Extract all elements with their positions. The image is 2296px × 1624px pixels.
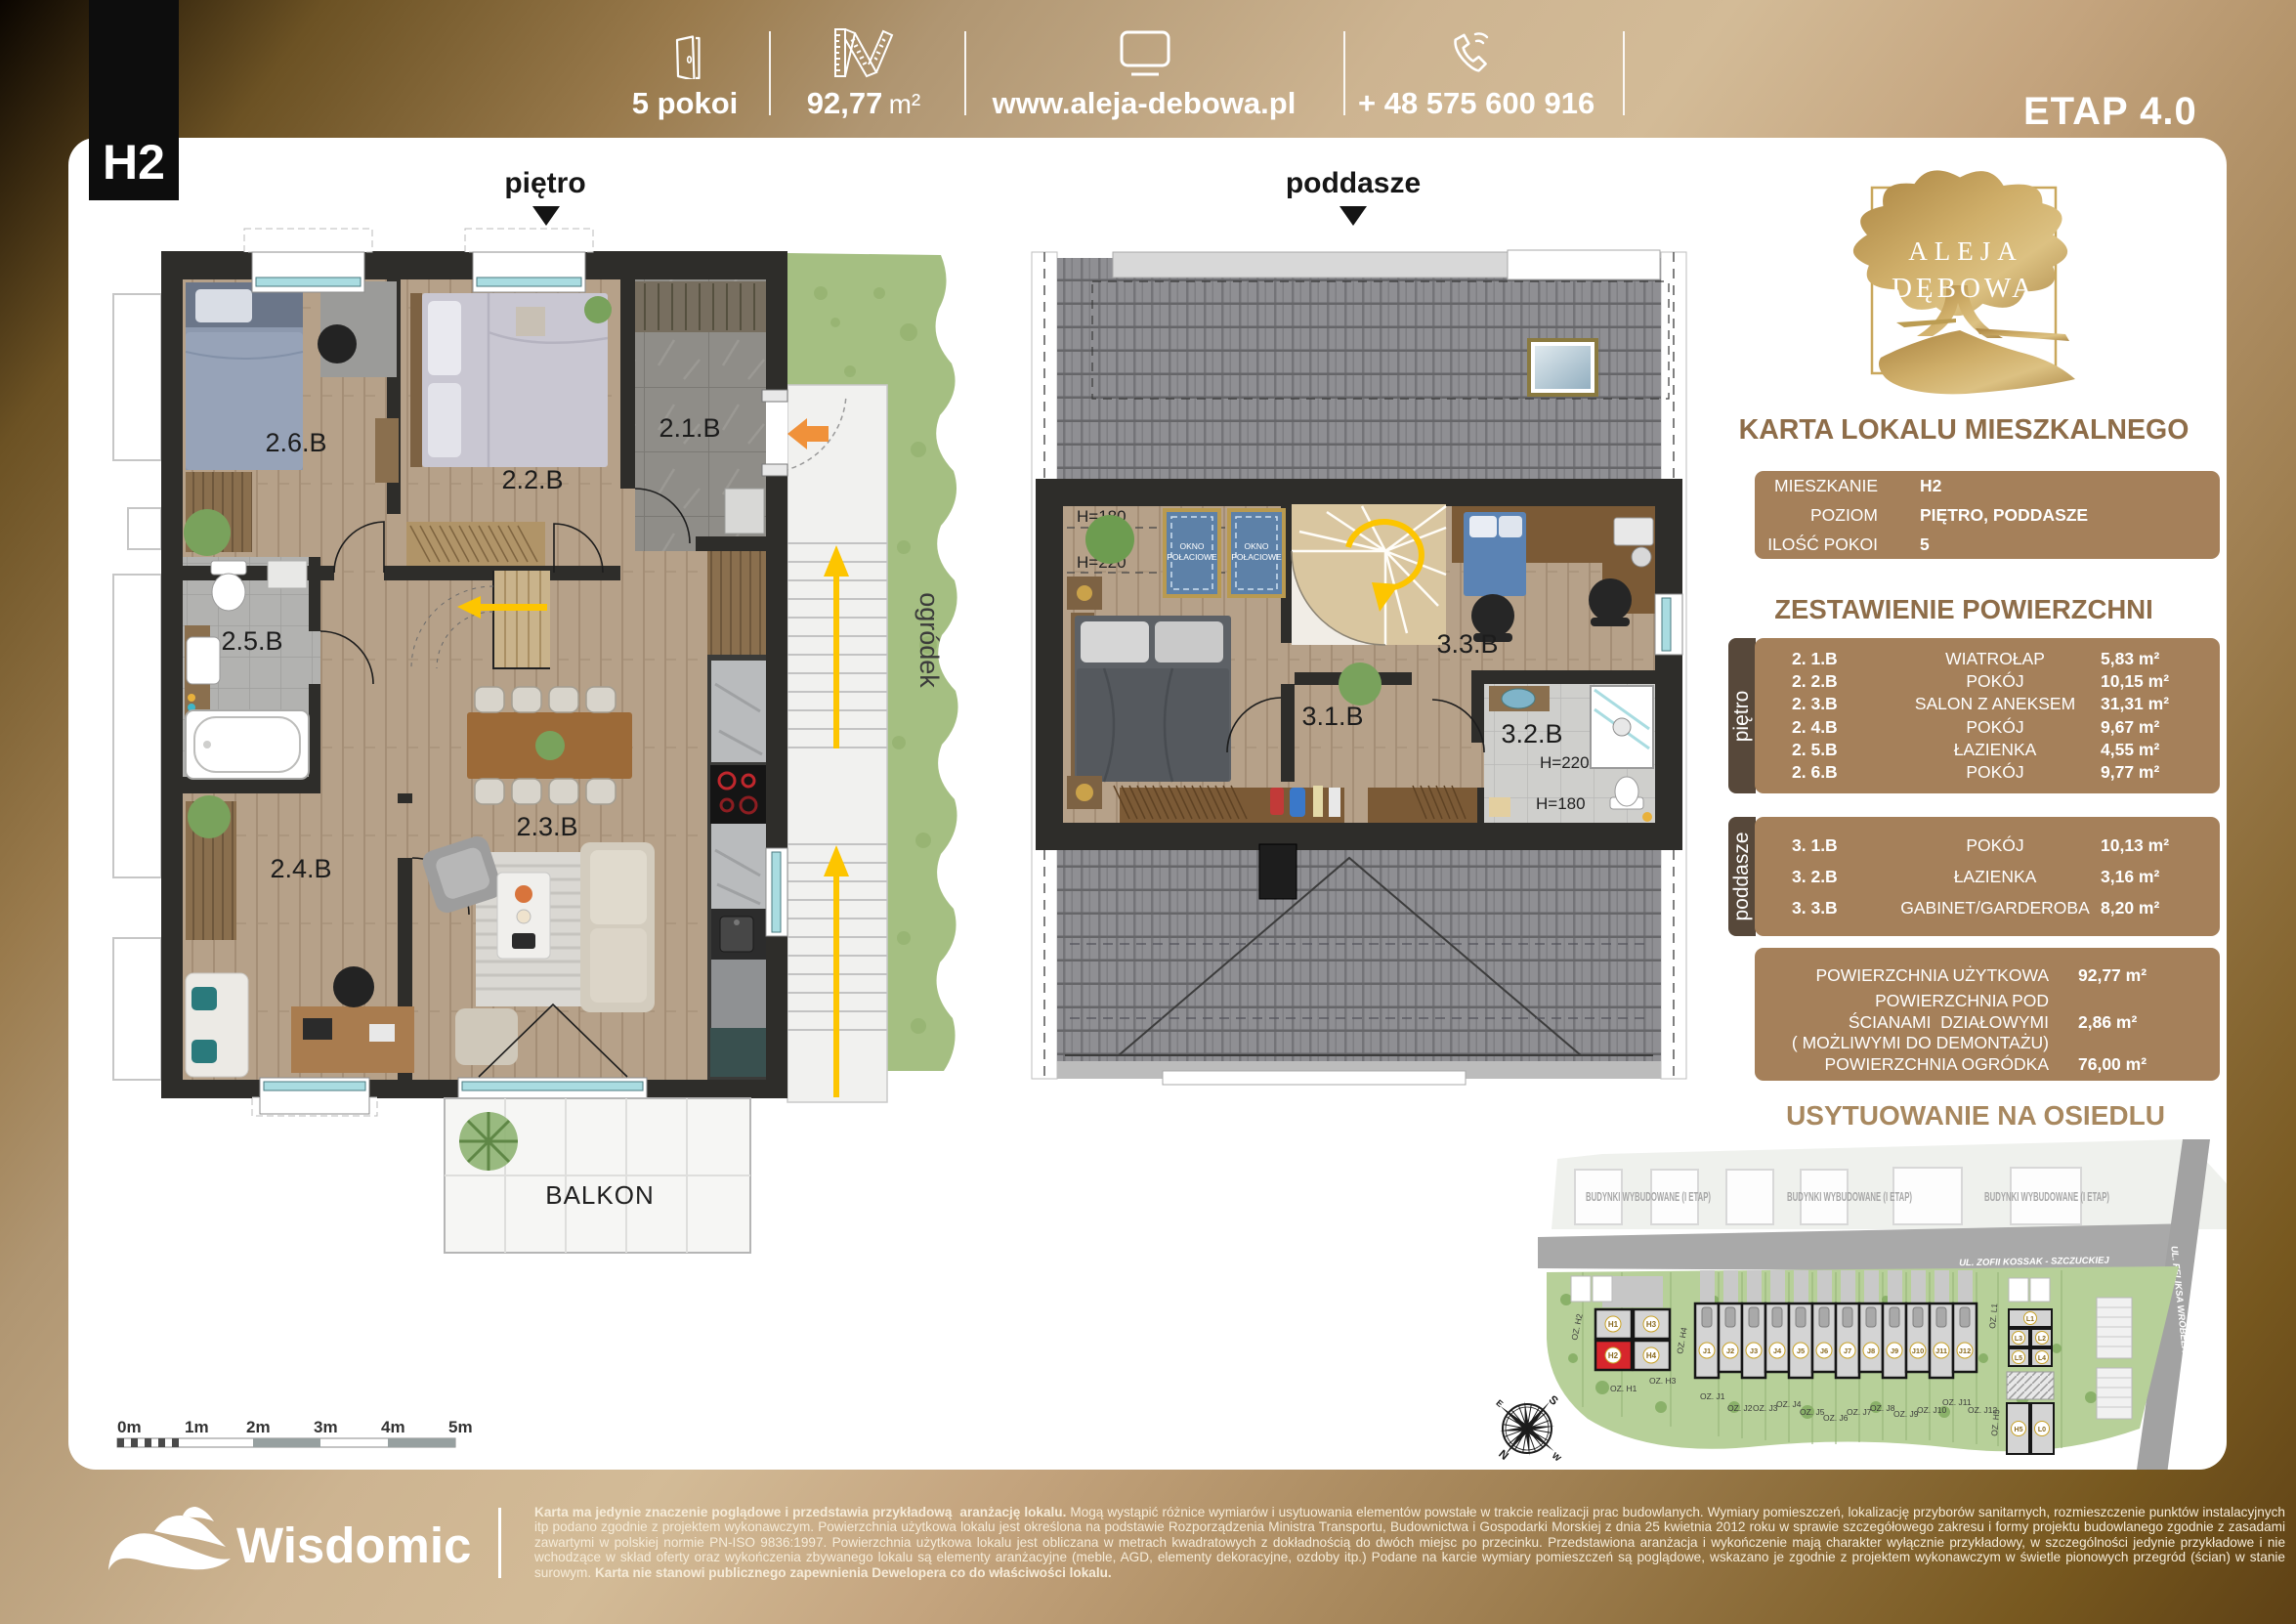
svg-text:OZ. J5: OZ. J5 — [1800, 1407, 1825, 1417]
svg-text:OKNO: OKNO — [1179, 541, 1204, 551]
svg-text:BALKON: BALKON — [545, 1180, 655, 1210]
svg-text:H2: H2 — [1608, 1351, 1619, 1360]
svg-text:J10: J10 — [1912, 1346, 1925, 1355]
svg-text:E: E — [1494, 1398, 1505, 1410]
svg-text:OZ. J6: OZ. J6 — [1823, 1413, 1849, 1423]
svg-text:OZ. J8: OZ. J8 — [1870, 1403, 1895, 1413]
svg-text:OZ. J7: OZ. J7 — [1847, 1407, 1872, 1417]
svg-text:BUDYNKI WYBUDOWANE (I ETAP): BUDYNKI WYBUDOWANE (I ETAP) — [1787, 1189, 1912, 1204]
svg-text:H5: H5 — [2015, 1427, 2023, 1433]
svg-text:OZ. H1: OZ. H1 — [1610, 1384, 1637, 1393]
svg-text:2.1.B: 2.1.B — [659, 413, 720, 443]
svg-text:BUDYNKI WYBUDOWANE (I ETAP): BUDYNKI WYBUDOWANE (I ETAP) — [1586, 1189, 1711, 1204]
svg-text:POŁACIOWE: POŁACIOWE — [1231, 552, 1282, 562]
svg-text:H4: H4 — [1646, 1351, 1657, 1360]
svg-text:Wisdomic: Wisdomic — [236, 1517, 471, 1573]
svg-text:H=180: H=180 — [1536, 794, 1586, 813]
svg-text:OZ. H3: OZ. H3 — [1649, 1376, 1677, 1386]
svg-text:OZ. J2: OZ. J2 — [1727, 1403, 1753, 1413]
svg-text:3m: 3m — [314, 1418, 338, 1436]
svg-text:J11: J11 — [1935, 1346, 1947, 1355]
svg-text:H1: H1 — [1608, 1320, 1619, 1329]
svg-text:S: S — [1547, 1392, 1561, 1408]
svg-text:J6: J6 — [1820, 1346, 1828, 1355]
svg-text:2.3.B: 2.3.B — [516, 812, 577, 841]
svg-text:BUDYNKI WYBUDOWANE (I ETAP): BUDYNKI WYBUDOWANE (I ETAP) — [1984, 1189, 2109, 1204]
svg-text:OZ. J3: OZ. J3 — [1753, 1403, 1778, 1413]
svg-text:L5: L5 — [2015, 1355, 2022, 1362]
svg-text:DĘBOWA: DĘBOWA — [1892, 273, 2036, 304]
svg-text:2m: 2m — [246, 1418, 271, 1436]
svg-text:2.4.B: 2.4.B — [270, 854, 331, 883]
svg-text:L2: L2 — [2038, 1336, 2046, 1343]
svg-text:2.2.B: 2.2.B — [501, 465, 563, 494]
svg-text:N: N — [1496, 1447, 1511, 1463]
svg-text:OZ. J9: OZ. J9 — [1893, 1409, 1919, 1419]
svg-text:ogródek: ogródek — [914, 592, 944, 688]
svg-text:L1: L1 — [2026, 1316, 2034, 1323]
svg-text:OZ. J1: OZ. J1 — [1700, 1391, 1725, 1401]
svg-text:POŁACIOWE: POŁACIOWE — [1167, 552, 1217, 562]
svg-text:ALEJA: ALEJA — [1908, 236, 2023, 266]
svg-text:0m: 0m — [117, 1418, 142, 1436]
svg-text:3.1.B: 3.1.B — [1301, 702, 1363, 731]
svg-text:J3: J3 — [1750, 1346, 1758, 1355]
svg-text:J1: J1 — [1703, 1346, 1711, 1355]
svg-text:OKNO: OKNO — [1244, 541, 1268, 551]
svg-text:OZ. J4: OZ. J4 — [1776, 1399, 1802, 1409]
svg-text:W: W — [1551, 1451, 1563, 1464]
svg-text:J2: J2 — [1726, 1346, 1734, 1355]
svg-text:4m: 4m — [381, 1418, 405, 1436]
svg-text:3.2.B: 3.2.B — [1501, 719, 1562, 748]
svg-text:3.3.B: 3.3.B — [1436, 629, 1498, 659]
svg-text:L3: L3 — [2015, 1336, 2022, 1343]
svg-text:J7: J7 — [1844, 1346, 1851, 1355]
svg-text:J9: J9 — [1891, 1346, 1898, 1355]
svg-text:J5: J5 — [1797, 1346, 1805, 1355]
svg-text:J4: J4 — [1773, 1346, 1782, 1355]
svg-text:5m: 5m — [448, 1418, 473, 1436]
svg-text:2.5.B: 2.5.B — [221, 626, 282, 656]
svg-text:J8: J8 — [1867, 1346, 1875, 1355]
svg-text:H3: H3 — [1646, 1320, 1657, 1329]
svg-text:2.6.B: 2.6.B — [265, 428, 326, 457]
svg-text:1m: 1m — [185, 1418, 209, 1436]
svg-text:H=220: H=220 — [1540, 753, 1590, 772]
svg-text:J12: J12 — [1959, 1346, 1972, 1355]
svg-text:L0: L0 — [2038, 1427, 2046, 1433]
svg-text:L4: L4 — [2038, 1355, 2046, 1362]
